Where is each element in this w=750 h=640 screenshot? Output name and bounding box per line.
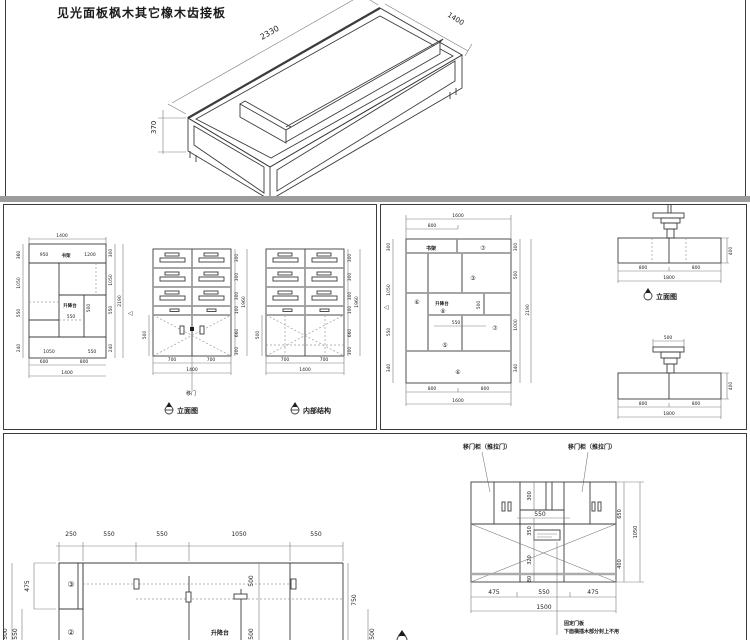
dim: 400 xyxy=(728,382,734,391)
section-marker-icon: ◁ xyxy=(384,304,389,311)
door-label: 移门 xyxy=(186,390,196,397)
dim: 340 xyxy=(513,364,519,373)
dim: 300 xyxy=(527,491,533,501)
dim: 300 xyxy=(108,249,114,258)
dim: 600 xyxy=(40,359,49,365)
dim: 550 xyxy=(103,531,115,538)
dim: 500 xyxy=(369,628,376,640)
dim: 300 xyxy=(347,254,353,263)
dim: 750 xyxy=(351,594,358,606)
dim: 950 xyxy=(40,252,49,258)
dim: 650 xyxy=(617,509,623,519)
dim: 1050 xyxy=(386,284,392,296)
dim: 550 xyxy=(108,306,114,315)
dim: 500 xyxy=(476,301,482,310)
cabinet-label: 移门柜（推拉门） xyxy=(568,443,616,451)
mr-elev-bottom-lines xyxy=(618,339,729,419)
dim: 1050 xyxy=(16,277,22,289)
dim: 240 xyxy=(16,344,22,353)
room-label: 升降台 xyxy=(63,302,77,309)
ml-elevation-lines xyxy=(149,249,247,390)
bt-plan-lines xyxy=(12,542,368,640)
dim: 500 xyxy=(248,628,255,640)
room-label: 书架 xyxy=(62,252,71,259)
dim: 500 xyxy=(142,331,148,340)
dim: 550 xyxy=(67,314,76,320)
dim: 340 xyxy=(386,364,392,373)
dim: 80 xyxy=(527,576,533,582)
iso-drawing-lines xyxy=(188,8,462,196)
mr-plan-lines xyxy=(393,215,531,406)
dim: 240 xyxy=(108,344,114,353)
drawing-caption: 立面图 xyxy=(656,292,677,301)
dim: 250 xyxy=(65,531,77,538)
dim: 400 xyxy=(617,559,623,569)
caption-icon xyxy=(397,630,407,640)
dim: 300 xyxy=(234,273,240,282)
section-marker-icon: ◁ xyxy=(128,310,133,317)
dim: 700 xyxy=(320,357,329,363)
dim: 800 xyxy=(692,401,701,407)
dim: 400 xyxy=(728,247,734,256)
dim: 550 xyxy=(452,320,461,326)
dim: 2190 xyxy=(525,304,531,316)
dim-width: 1400 xyxy=(446,11,465,27)
bottom-svg: 250 550 550 1050 550 475 550 500 ③ ② 升降台… xyxy=(4,434,746,640)
dim: 500 xyxy=(664,335,673,341)
dim: 300 xyxy=(234,347,240,356)
mid-left-panel: 1400 950 书架 1200 升降台 500 550 1050 550 36… xyxy=(3,204,377,430)
dim-height: 370 xyxy=(150,121,158,134)
marker: ⑦ xyxy=(480,245,486,252)
marker: ② xyxy=(67,628,74,637)
dim: 475 xyxy=(24,580,31,592)
dim: 800 xyxy=(692,265,701,271)
dim: 700 xyxy=(168,357,177,363)
dim: 700 xyxy=(207,357,216,363)
dim: 550 xyxy=(538,589,550,596)
note-text: 固定门板 xyxy=(564,620,585,627)
dim: 800 xyxy=(428,386,437,392)
marker: ⑤ xyxy=(442,342,447,349)
dim: 300 xyxy=(347,273,353,282)
dim: 300 xyxy=(386,243,392,252)
dim: 500 xyxy=(248,575,255,587)
dim-length: 2330 xyxy=(259,24,281,42)
dim: 1800 xyxy=(663,411,675,417)
iso-panel-svg: 见光面板枫木其它橡木齿接板 2330 1400 370 xyxy=(0,0,750,196)
dim: 1050 xyxy=(108,274,114,286)
marker: ⑧ xyxy=(440,308,445,315)
drawing-caption: 内部结构 xyxy=(303,406,331,415)
mr-elev-top-lines xyxy=(618,205,729,283)
dim: 360 xyxy=(16,251,22,260)
dim: 660 xyxy=(234,329,240,338)
dim: 300 xyxy=(234,292,240,301)
dim: 800 xyxy=(639,401,648,407)
dim: 320 xyxy=(527,555,533,565)
dim: 475 xyxy=(587,589,599,596)
caption-icon xyxy=(165,402,173,414)
dim: 1400 xyxy=(299,367,311,373)
dim: 1600 xyxy=(452,213,464,219)
dim: 1000 xyxy=(513,319,519,331)
dim: 550 xyxy=(16,309,22,318)
dim: 550 xyxy=(12,628,19,640)
dim: 800 xyxy=(639,265,648,271)
mid-right-svg: 1600 800 书架 ⑦ ③ ⑥ 升降台 ⑧ 500 550 ⑤ ⑦ ⑥ 30… xyxy=(381,205,746,429)
marker: ⑥ xyxy=(414,299,419,306)
dim: 500 xyxy=(4,628,9,640)
dim: 1960 xyxy=(354,296,360,308)
bt-cabinet-lines xyxy=(471,452,644,635)
marker: ⑦ xyxy=(492,325,498,332)
dim: 1800 xyxy=(663,275,675,281)
dim: 300 xyxy=(347,347,353,356)
dim: 300 xyxy=(347,292,353,301)
dim: 550 xyxy=(156,531,168,538)
dim: 300 xyxy=(234,254,240,263)
ml-structure-lines xyxy=(262,249,360,375)
dim: 550 xyxy=(534,511,546,518)
bottom-panel: 250 550 550 1050 550 475 550 500 ③ ② 升降台… xyxy=(3,433,747,640)
dim: 800 xyxy=(428,223,437,229)
sheet-title: 见光面板枫木其它橡木齿接板 xyxy=(57,5,226,20)
cabinet-label: 移门柜（推拉门） xyxy=(463,443,511,451)
dim: 550 xyxy=(386,328,392,337)
dim: 800 xyxy=(481,386,490,392)
caption-icon xyxy=(291,402,299,414)
marker: ③ xyxy=(67,580,74,589)
dim: 700 xyxy=(281,357,290,363)
dim: 1400 xyxy=(56,233,68,239)
room-label: 升降台 xyxy=(211,629,229,637)
dim: 100 xyxy=(234,306,240,315)
dim: 500 xyxy=(513,271,519,280)
dim: 550 xyxy=(88,349,97,355)
dim: 800 xyxy=(80,359,89,365)
cad-sheet: 见光面板枫木其它橡木齿接板 2330 1400 370 xyxy=(0,0,750,640)
dim: 660 xyxy=(347,329,353,338)
mid-left-svg: 1400 950 书架 1200 升降台 500 550 1050 550 36… xyxy=(4,205,376,429)
dim: 1400 xyxy=(61,370,73,376)
dim: 1600 xyxy=(452,398,464,404)
dim: 300 xyxy=(513,243,519,252)
dim: 1050 xyxy=(633,526,639,539)
dim: 100 xyxy=(347,306,353,315)
room-label: 书架 xyxy=(426,245,436,252)
mid-right-panel: 1600 800 书架 ⑦ ③ ⑥ 升降台 ⑧ 500 550 ⑤ ⑦ ⑥ 30… xyxy=(380,204,747,430)
dim: 350 xyxy=(527,526,533,536)
marker: ③ xyxy=(470,275,475,282)
dim: 1050 xyxy=(231,531,246,538)
dim: 500 xyxy=(86,304,92,313)
note-text: 下面横插木部分封上不用 xyxy=(564,628,619,635)
marker: ⑥ xyxy=(455,369,460,376)
dim: 1500 xyxy=(536,604,551,611)
dim: 2190 xyxy=(117,295,123,307)
dim: 1960 xyxy=(241,296,247,308)
dim: 550 xyxy=(310,531,322,538)
caption-icon xyxy=(644,288,652,300)
dim: 1050 xyxy=(43,349,55,355)
dim: 475 xyxy=(488,589,500,596)
dim: 1400 xyxy=(186,367,198,373)
panel-divider xyxy=(0,196,750,202)
dim: 1200 xyxy=(84,252,96,258)
room-label: 升降台 xyxy=(435,300,449,307)
dim: 500 xyxy=(255,331,261,340)
drawing-caption: 立面图 xyxy=(177,406,198,415)
